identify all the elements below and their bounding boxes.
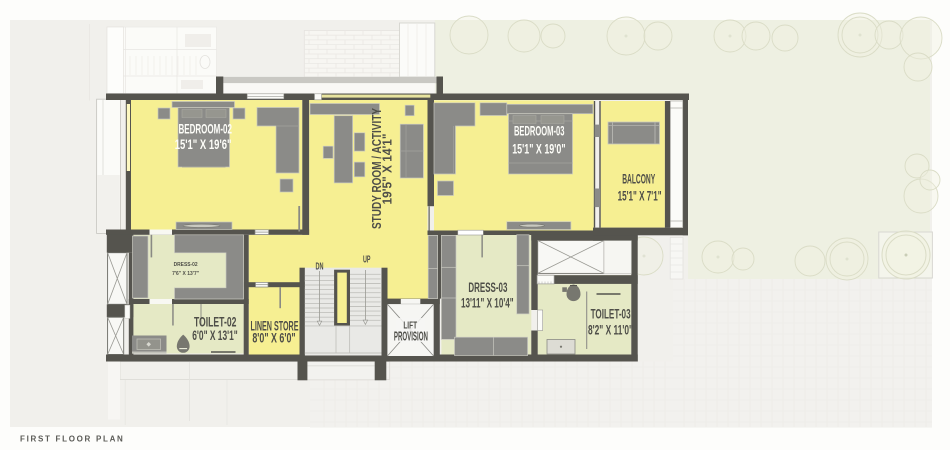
svg-text:7'6" X 13'7": 7'6" X 13'7" bbox=[172, 271, 199, 277]
svg-text:DRESS-02: DRESS-02 bbox=[174, 262, 198, 268]
svg-text:15'1" X 19'6": 15'1" X 19'6" bbox=[175, 136, 232, 152]
svg-text:15'1" X 19'0": 15'1" X 19'0" bbox=[512, 140, 565, 156]
svg-text:BALCONY: BALCONY bbox=[622, 172, 655, 187]
svg-text:8'0" X 6'0": 8'0" X 6'0" bbox=[252, 331, 295, 346]
svg-text:DN: DN bbox=[316, 262, 324, 273]
svg-text:TOILET-03: TOILET-03 bbox=[591, 307, 631, 322]
svg-text:DRESS-03: DRESS-03 bbox=[468, 280, 507, 295]
svg-text:UP: UP bbox=[363, 255, 371, 266]
svg-text:15'1" X 7'1": 15'1" X 7'1" bbox=[618, 188, 662, 203]
svg-text:13'11" X 10'4": 13'11" X 10'4" bbox=[461, 296, 514, 311]
svg-text:FIRST FLOOR PLAN: FIRST FLOOR PLAN bbox=[20, 435, 125, 444]
svg-text:19'5" X 14'1": 19'5" X 14'1" bbox=[380, 134, 395, 205]
svg-text:PROVISION: PROVISION bbox=[394, 329, 428, 344]
svg-text:6'0" X 13'1": 6'0" X 13'1" bbox=[192, 328, 238, 343]
svg-text:BEDROOM-03: BEDROOM-03 bbox=[514, 123, 565, 139]
svg-text:8'2" X 11'0": 8'2" X 11'0" bbox=[588, 323, 633, 338]
svg-text:BEDROOM-02: BEDROOM-02 bbox=[178, 121, 232, 137]
